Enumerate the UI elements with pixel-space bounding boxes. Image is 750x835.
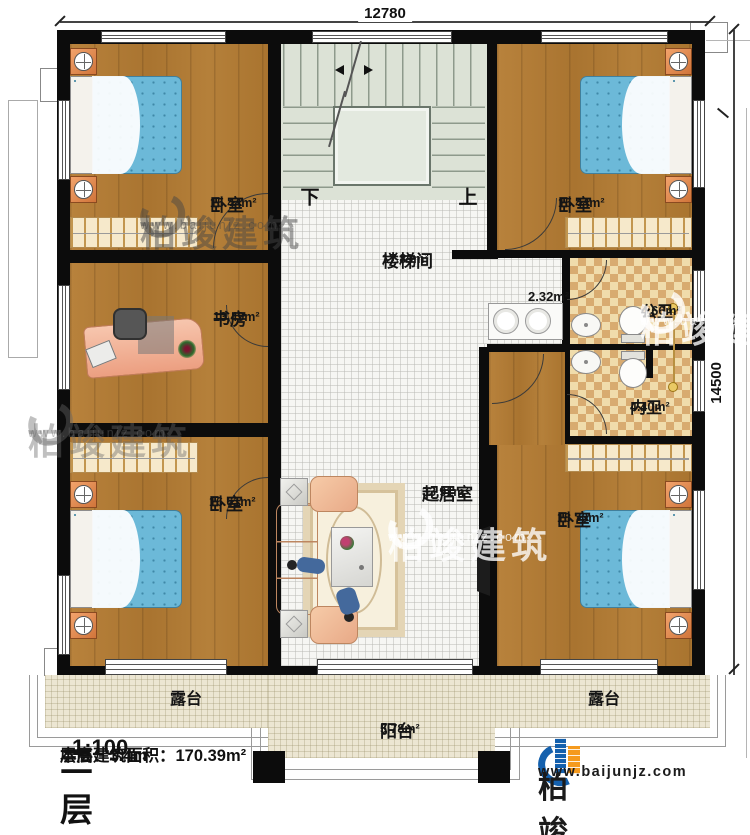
- tv: [477, 526, 490, 596]
- bath-sink: [571, 313, 601, 337]
- bed-headboard: [70, 510, 93, 608]
- lamp-icon: [74, 52, 93, 71]
- bed: [70, 510, 182, 608]
- nightstand: [70, 48, 97, 75]
- bath-sink: [571, 350, 601, 374]
- extension-line-top-right: [706, 40, 750, 41]
- person: [287, 560, 297, 570]
- towel-rail: [673, 310, 675, 386]
- lamp-icon: [669, 52, 688, 71]
- nightstand: [70, 481, 97, 508]
- window: [58, 100, 70, 180]
- armchair: [310, 476, 358, 512]
- bed: [70, 76, 182, 174]
- lamp-icon: [669, 616, 688, 635]
- lamp-icon: [669, 485, 688, 504]
- lamp-icon: [669, 180, 688, 199]
- window: [693, 100, 705, 188]
- floor-height-text: 层高：3.4m: [60, 742, 147, 766]
- wardrobe: [70, 442, 198, 473]
- wall-stub-bath: [646, 344, 653, 378]
- window: [58, 285, 70, 390]
- bed-headboard: [669, 510, 692, 608]
- desk-chair: [113, 308, 147, 340]
- nightstand: [70, 176, 97, 203]
- wardrobe: [70, 217, 198, 248]
- window: [101, 31, 226, 43]
- towel-rail-knob: [668, 382, 678, 392]
- lamp-icon: [74, 485, 93, 504]
- bed-sheet: [622, 76, 670, 174]
- bed-headboard: [669, 76, 692, 174]
- tick-top-right-corner: [717, 108, 729, 119]
- nightstand: [665, 48, 692, 75]
- nightstand: [665, 481, 692, 508]
- stair-landing: [333, 106, 431, 186]
- window: [58, 575, 70, 655]
- stair-treads-top: [283, 44, 485, 106]
- terrace-left-floor: [45, 675, 268, 728]
- bed-headboard: [70, 76, 93, 174]
- stair-up-label: 上: [458, 183, 477, 210]
- extension-line-right: [746, 108, 747, 758]
- coffee-table: [331, 527, 373, 587]
- window: [693, 270, 705, 322]
- wall-tv: [479, 347, 489, 666]
- window: [693, 490, 705, 590]
- bed-sheet: [92, 76, 140, 174]
- toilet-tank: [621, 334, 645, 343]
- nightstand: [665, 612, 692, 639]
- stair-treads-left: [283, 100, 333, 188]
- side-table: [280, 478, 308, 506]
- nightstand: [70, 612, 97, 639]
- floor-plan: 12780 14500 下: [0, 0, 750, 835]
- washbasin: [525, 308, 551, 334]
- stair-arrow-icon: [364, 65, 378, 75]
- bed-sheet: [92, 510, 140, 608]
- dimension-height: 14500: [708, 358, 725, 408]
- balcony-pillar: [253, 751, 285, 783]
- plant-icon: [178, 340, 196, 358]
- window: [312, 31, 452, 43]
- window: [105, 659, 227, 675]
- balcony-pillar: [478, 751, 510, 783]
- stair-down-label: 下: [300, 183, 319, 210]
- brand-website: www.baijunjz.com: [538, 764, 687, 780]
- balcony-floor: [268, 675, 495, 758]
- window: [540, 659, 658, 675]
- toilet: [619, 358, 647, 388]
- bed-sheet: [622, 510, 670, 608]
- dimension-width: 12780: [358, 5, 412, 22]
- lamp-icon: [74, 616, 93, 635]
- bed: [580, 76, 692, 174]
- balcony-door: [317, 659, 473, 675]
- side-table: [280, 610, 308, 638]
- stair-treads-right: [432, 100, 485, 188]
- window: [541, 31, 668, 43]
- window: [693, 360, 705, 412]
- wardrobe: [565, 444, 692, 472]
- dimension-line-right: [733, 30, 735, 675]
- nightstand: [665, 176, 692, 203]
- washbasin: [493, 308, 519, 334]
- wall-stub-vestibule: [452, 250, 498, 259]
- site-outline-box: [8, 100, 38, 358]
- stair-arrow-icon: [330, 65, 344, 75]
- lamp-icon: [74, 180, 93, 199]
- wardrobe: [565, 217, 692, 248]
